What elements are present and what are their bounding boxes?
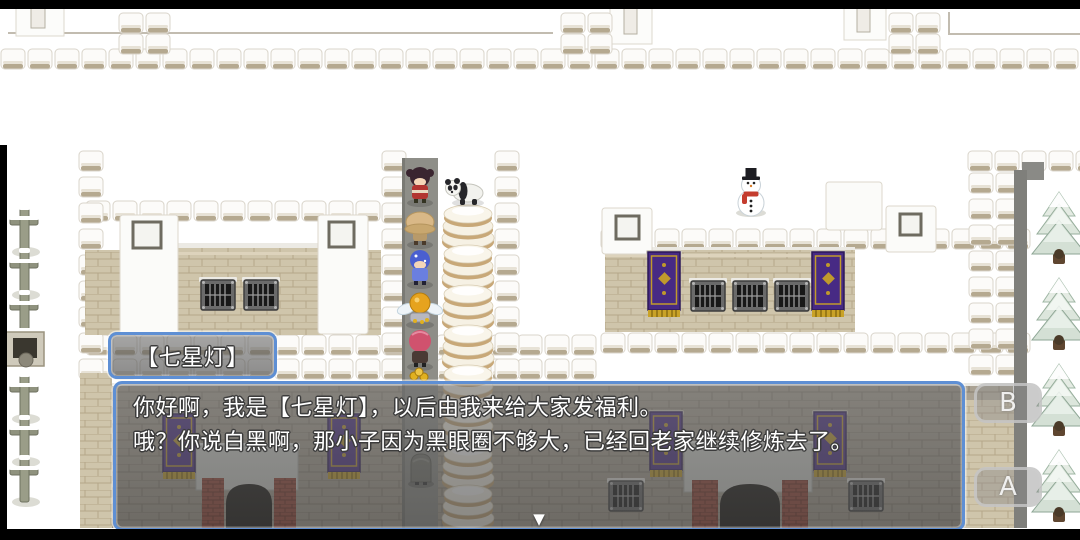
snow-pine-tree	[1032, 192, 1080, 264]
battlement-row	[601, 229, 1030, 249]
barred-window	[199, 277, 237, 310]
battlement-column	[969, 173, 993, 375]
purple-banner	[810, 250, 846, 317]
grave-cross-column	[4, 205, 46, 507]
barred-window	[731, 278, 769, 311]
message-line-2: 哦？你说白黑啊，那小子因为黑眼圈不够大，已经回老家继续修炼去了。	[133, 426, 853, 460]
speaker-name: 【七星灯】	[136, 340, 249, 372]
a-button[interactable]: A	[974, 467, 1042, 507]
snow-pine-tree	[1032, 278, 1080, 350]
speaker-name-window: 【七星灯】	[108, 332, 277, 379]
right-wall	[602, 182, 936, 332]
battlement-tiles	[119, 13, 170, 33]
message-text: 你好啊，我是【七星灯】，以后由我来给大家发福利。 哦？你说白黑啊，那小子因为黑眼…	[133, 392, 853, 460]
barred-window	[773, 278, 811, 311]
barred-window	[689, 278, 727, 311]
letterbox-bottom	[0, 529, 1080, 540]
npc-straw-hat[interactable]	[405, 212, 435, 249]
battlement-column	[495, 151, 519, 379]
barred-window	[242, 277, 280, 310]
left-wall	[85, 215, 381, 335]
snowman-sprite	[736, 168, 766, 217]
a-button-label: A	[999, 472, 1017, 502]
b-button-label: B	[999, 388, 1017, 418]
battlement-tiles	[889, 13, 940, 33]
stone-well	[4, 328, 46, 367]
purple-banner	[646, 250, 682, 317]
panda-sprite[interactable]	[445, 178, 484, 207]
battlement-tiles	[561, 13, 612, 33]
battlement-row	[601, 333, 1030, 353]
b-button[interactable]: B	[974, 383, 1042, 423]
continue-arrow-icon[interactable]: ▼	[533, 510, 545, 528]
message-window[interactable]: 你好啊，我是【七星灯】，以后由我来给大家发福利。 哦？你说白黑啊，那小子因为黑眼…	[113, 381, 965, 531]
letterbox-left	[0, 145, 7, 529]
letterbox-top	[0, 0, 1080, 9]
message-line-1: 你好啊，我是【七星灯】，以后由我来给大家发福利。	[133, 392, 853, 426]
